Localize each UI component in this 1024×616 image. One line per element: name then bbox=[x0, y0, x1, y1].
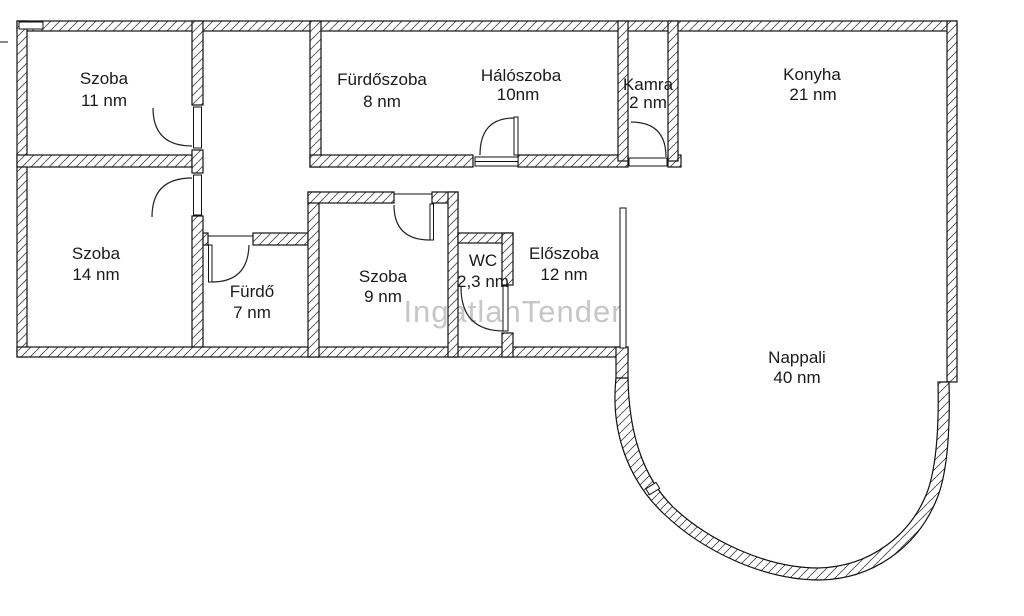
room-area-label: 12 nm bbox=[540, 265, 587, 284]
door-leaf-szoba9 bbox=[430, 204, 434, 240]
room-szoba-9: Szoba 9 nm bbox=[359, 267, 408, 306]
wall-furdo-top-b bbox=[253, 233, 308, 245]
wall-right-outer bbox=[947, 21, 957, 382]
room-wc: WC 2,3 nm bbox=[457, 251, 509, 291]
door-arc-kamra bbox=[631, 122, 666, 157]
door-threshold-kamra bbox=[629, 158, 667, 166]
room-furdo: Fürdő 7 nm bbox=[230, 282, 274, 322]
room-area-label: 10nm bbox=[497, 85, 540, 104]
room-name-label: Fürdőszoba bbox=[337, 70, 427, 89]
room-area-label: 7 nm bbox=[233, 303, 271, 322]
watermark: IngatlanTender bbox=[403, 294, 622, 329]
room-area-label: 2,3 nm bbox=[457, 272, 509, 291]
room-szoba-11: Szoba 11 nm bbox=[80, 69, 129, 110]
room-name-label: WC bbox=[469, 251, 497, 270]
room-szoba-14: Szoba 14 nm bbox=[72, 244, 121, 284]
door-arc-szoba9 bbox=[394, 205, 430, 240]
room-nappali: Nappali 40 nm bbox=[768, 348, 826, 387]
wall-nappali-curve bbox=[615, 378, 949, 580]
room-area-label: 40 nm bbox=[773, 368, 820, 387]
door-leaf-haloszoba bbox=[514, 117, 518, 155]
wall-bottom-outer bbox=[17, 347, 628, 357]
door-arc-furdo bbox=[212, 245, 249, 282]
wall-szoba9-top-a bbox=[308, 192, 394, 203]
wall-furdo-szoba9 bbox=[308, 192, 319, 357]
door-frame-szoba11 bbox=[194, 107, 202, 148]
room-furdoszoba: Fürdőszoba 8 nm bbox=[337, 70, 427, 111]
window-top-left bbox=[19, 22, 43, 29]
room-area-label: 21 nm bbox=[789, 85, 836, 104]
room-eloszoba: Előszoba 12 nm bbox=[529, 244, 599, 284]
room-name-label: Konyha bbox=[783, 65, 841, 84]
floorplan: IngatlanTender bbox=[0, 0, 1024, 616]
room-name-label: Hálószoba bbox=[481, 66, 562, 85]
wall-eloszoba-step bbox=[616, 347, 628, 382]
room-name-label: Nappali bbox=[768, 348, 826, 367]
room-area-label: 9 nm bbox=[364, 287, 402, 306]
room-name-label: Szoba bbox=[80, 69, 129, 88]
door-arc-szoba14 bbox=[152, 178, 192, 217]
room-konyha: Konyha 21 nm bbox=[783, 65, 841, 104]
door-arc-haloszoba bbox=[480, 118, 514, 155]
room-area-label: 14 nm bbox=[72, 265, 119, 284]
wall-top-outer bbox=[17, 21, 957, 31]
room-name-label: Szoba bbox=[359, 267, 408, 286]
wall-corridor-left-c bbox=[192, 216, 203, 347]
door-leaf-furdo bbox=[209, 245, 213, 282]
floorplan-svg: IngatlanTender bbox=[0, 0, 1024, 616]
wall-middle-horizontal-a bbox=[310, 155, 473, 167]
wall-corridor-left-a bbox=[192, 21, 203, 105]
divider-eloszoba-nappali bbox=[620, 208, 626, 348]
wall-corridor-left-b bbox=[192, 150, 203, 173]
wall-furdoszoba-left bbox=[310, 21, 321, 167]
door-frame-szoba14 bbox=[194, 175, 202, 215]
room-name-label: Kamra bbox=[623, 75, 674, 94]
door-arc-szoba11 bbox=[153, 108, 192, 146]
room-kamra: Kamra 2 nm bbox=[623, 75, 674, 112]
wall-wc-right-b bbox=[502, 333, 513, 357]
room-haloszoba: Hálószoba 10nm bbox=[481, 66, 562, 104]
room-name-label: Fürdő bbox=[230, 282, 274, 301]
wall-middle-horizontal-b bbox=[518, 155, 628, 167]
room-area-label: 11 nm bbox=[81, 91, 127, 110]
wall-furdo-top-a bbox=[203, 233, 208, 245]
wall-szoba11-szoba14 bbox=[17, 155, 192, 167]
room-area-label: 8 nm bbox=[363, 92, 401, 111]
room-area-label: 2 nm bbox=[629, 93, 667, 112]
room-name-label: Szoba bbox=[72, 244, 121, 263]
room-name-label: Előszoba bbox=[529, 244, 599, 263]
door-leaf-wc bbox=[503, 286, 508, 331]
wall-left-outer bbox=[17, 21, 27, 357]
